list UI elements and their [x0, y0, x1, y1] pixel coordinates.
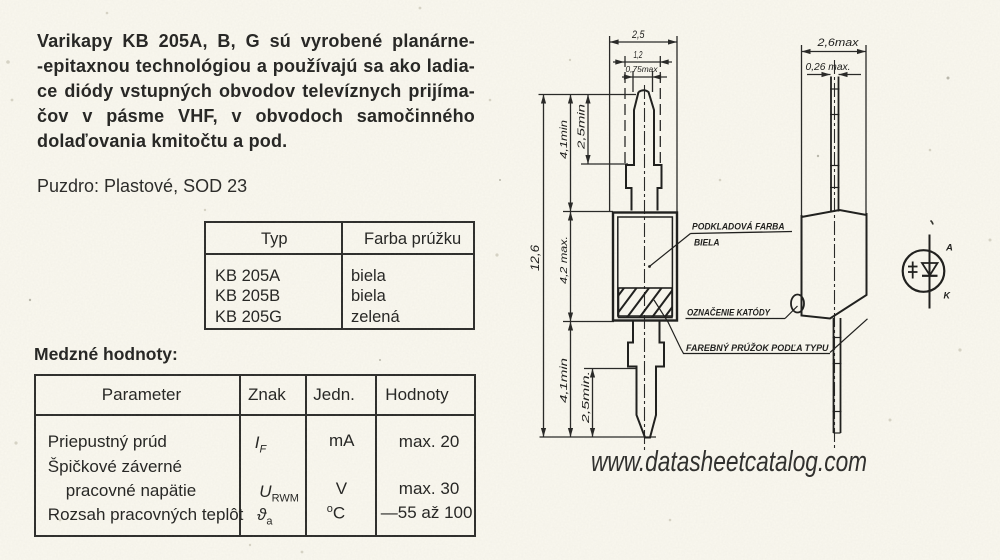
svg-text:2,5min: 2,5min [577, 103, 588, 150]
svg-text:0,26 max.: 0,26 max. [806, 62, 851, 73]
svg-text:A: A [945, 243, 953, 254]
svg-text:4,1min: 4,1min [559, 357, 570, 403]
svg-text:BIELA: BIELA [694, 238, 720, 248]
svg-text:0,75max: 0,75max [626, 64, 659, 74]
svg-text:12,6: 12,6 [530, 244, 542, 271]
svg-text:2,5: 2,5 [631, 29, 645, 41]
svg-text:OZNAČENIE KATÓDY: OZNAČENIE KATÓDY [687, 307, 771, 318]
svg-text:2,6max: 2,6max [816, 37, 859, 49]
svg-text:4,2 max.: 4,2 max. [559, 236, 570, 284]
svg-text:FAREBNÝ PRÚŽOK PODĽA TYPU: FAREBNÝ PRÚŽOK PODĽA TYPU [686, 342, 829, 353]
svg-text:PODKLADOVÁ FARBA: PODKLADOVÁ FARBA [692, 222, 785, 232]
svg-text:4,1min: 4,1min [559, 119, 570, 159]
svg-text:1,2: 1,2 [634, 50, 643, 61]
svg-text:2,5min.: 2,5min. [581, 371, 592, 425]
